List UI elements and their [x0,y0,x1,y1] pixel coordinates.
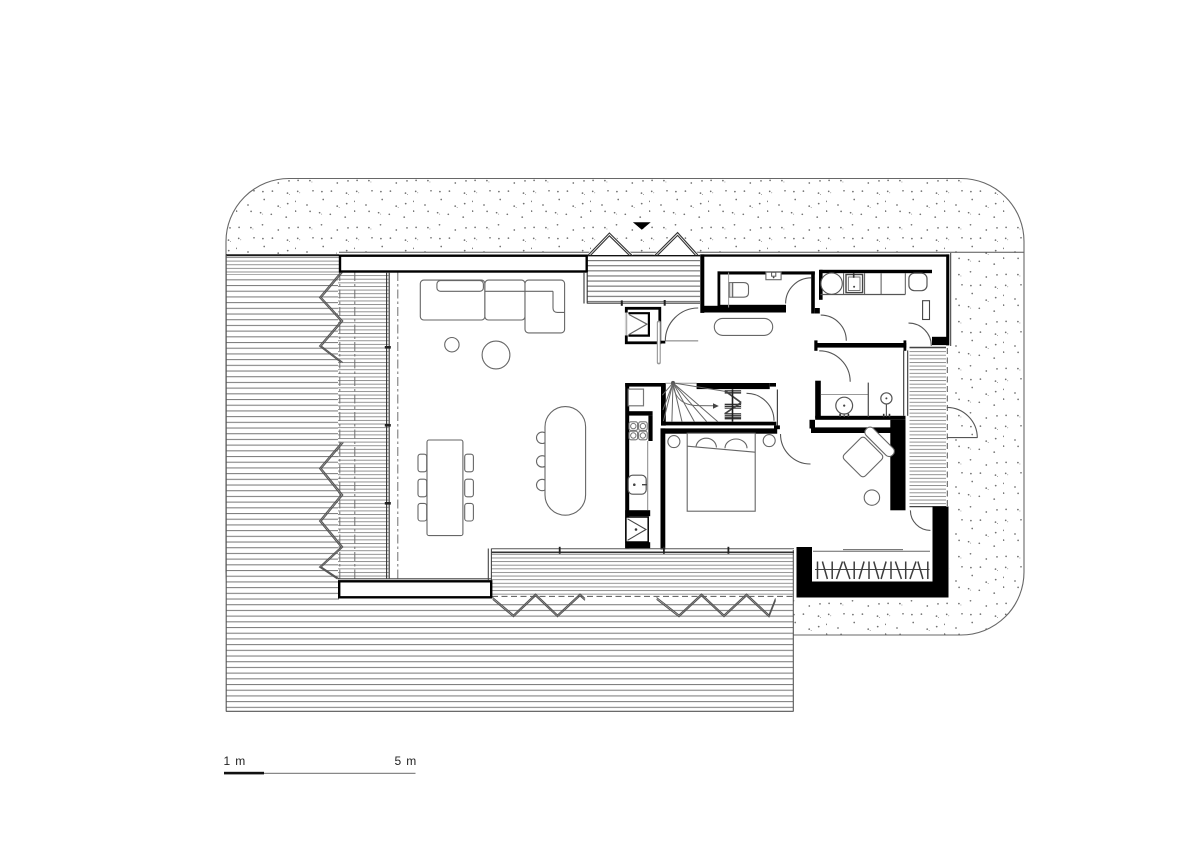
svg-text:1 m: 1 m [224,754,247,768]
svg-text:5 m: 5 m [395,754,418,768]
